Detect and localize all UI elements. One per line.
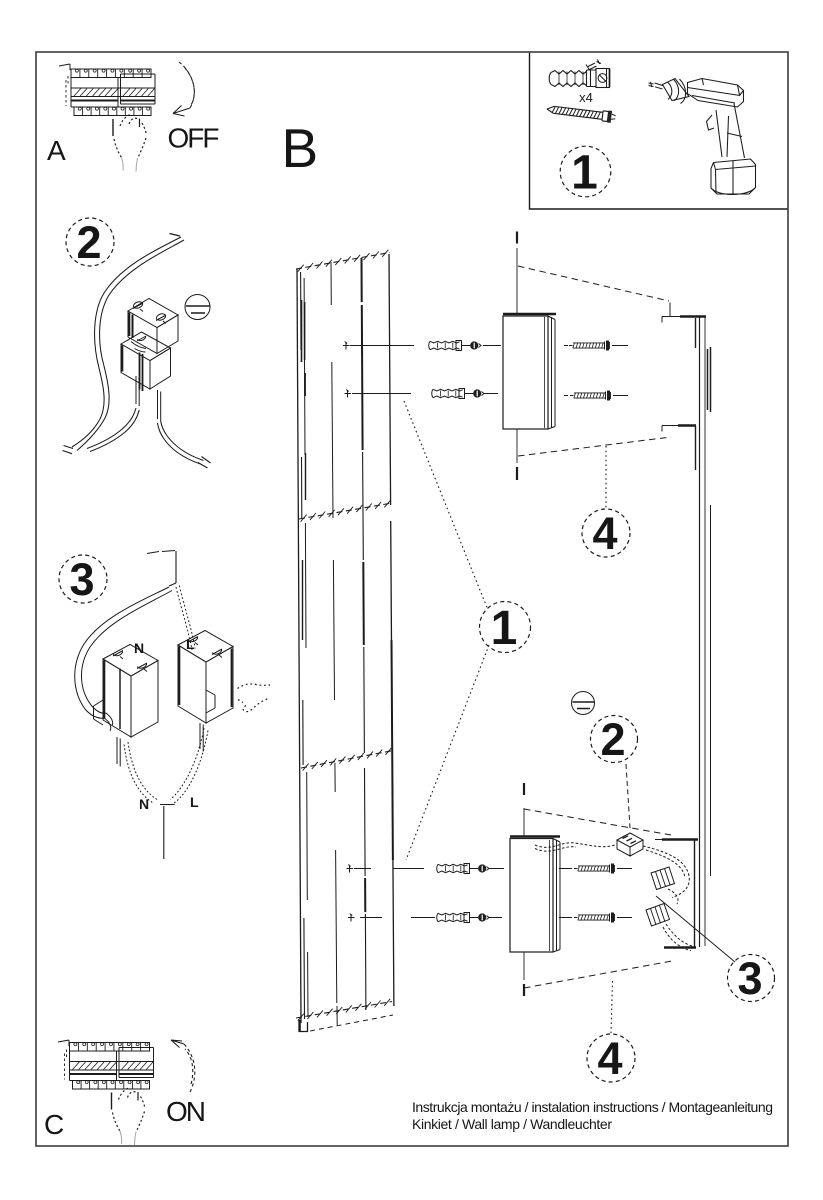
- svg-text:3: 3: [737, 953, 762, 1004]
- svg-text:C: C: [44, 1109, 64, 1140]
- svg-text:1: 1: [571, 147, 598, 200]
- svg-text:OFF: OFF: [168, 123, 220, 154]
- svg-text:2: 2: [76, 217, 101, 268]
- svg-text:1: 1: [491, 602, 518, 655]
- svg-text:ON: ON: [166, 1096, 206, 1127]
- svg-text:Instrukcja montażu / instalati: Instrukcja montażu / instalation instruc…: [412, 1099, 773, 1115]
- svg-text:x4: x4: [579, 90, 593, 105]
- svg-text:L: L: [186, 636, 195, 652]
- svg-text:Kinkiet / Wall lamp / Wandleuc: Kinkiet / Wall lamp / Wandleuchter: [412, 1116, 612, 1132]
- svg-text:A: A: [47, 135, 66, 166]
- svg-text:4: 4: [597, 1033, 622, 1084]
- svg-text:4: 4: [592, 508, 617, 559]
- svg-text:3: 3: [69, 554, 94, 605]
- svg-text:N: N: [134, 640, 144, 656]
- svg-text:N: N: [139, 796, 149, 812]
- svg-text:L: L: [190, 794, 199, 810]
- svg-text:B: B: [282, 117, 319, 179]
- svg-text:2: 2: [600, 714, 625, 765]
